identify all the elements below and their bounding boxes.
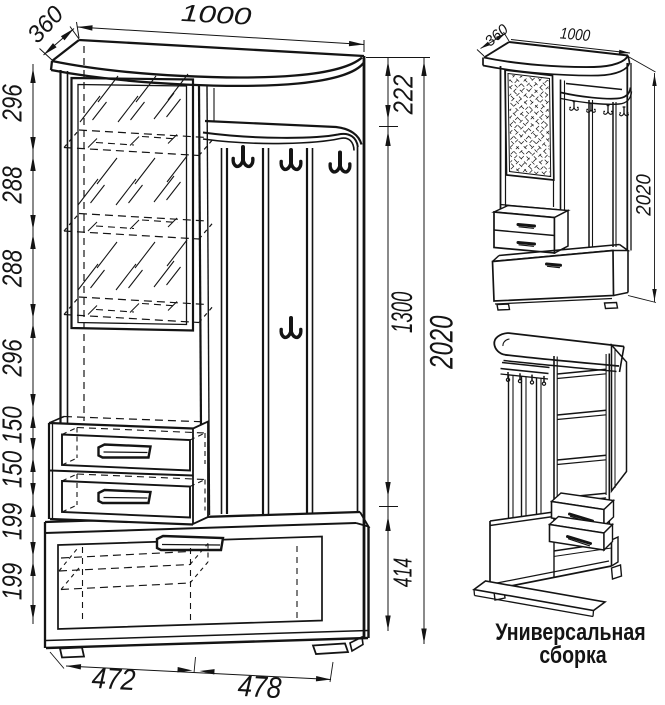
svg-text:199: 199 [0,563,28,600]
svg-text:2020: 2020 [633,174,656,216]
svg-text:222: 222 [387,74,419,115]
svg-text:сборка: сборка [539,641,607,668]
svg-text:288: 288 [0,166,28,204]
svg-text:1000: 1000 [559,26,591,46]
svg-text:296: 296 [0,84,28,123]
svg-text:1300: 1300 [386,292,420,333]
svg-text:150: 150 [0,406,28,443]
svg-text:296: 296 [0,339,28,378]
svg-text:199: 199 [0,503,28,540]
svg-text:414: 414 [388,558,417,587]
svg-text:1000: 1000 [180,0,252,30]
svg-text:478: 478 [237,669,283,700]
svg-text:472: 472 [91,661,137,697]
svg-text:150: 150 [0,451,28,488]
svg-text:2020: 2020 [423,315,459,369]
svg-text:288: 288 [0,250,28,288]
